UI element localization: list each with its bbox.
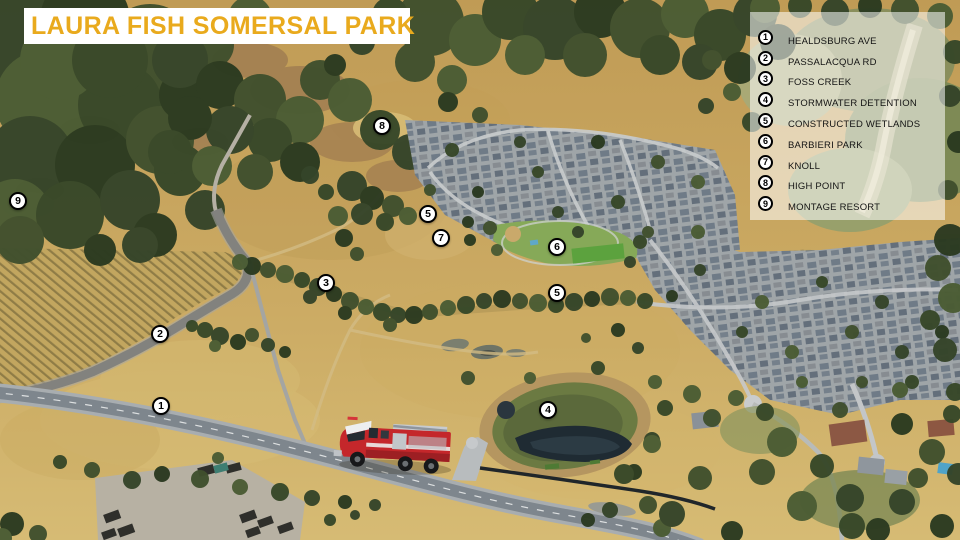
map-marker-5: 5: [419, 205, 437, 223]
legend-label: HIGH POINT: [788, 181, 845, 192]
legend-label: HEALDSBURG AVE: [788, 36, 877, 47]
legend-marker-number: 1: [758, 30, 773, 45]
legend-label: PASSALACQUA RD: [788, 57, 877, 68]
legend-row: 3 FOSS CREEK: [758, 69, 945, 90]
legend-marker-number: 9: [758, 196, 773, 211]
slide: LAURA FISH SOMERSAL PARK 1 HEALDSBURG AV…: [0, 0, 960, 540]
legend-row: 9 MONTAGE RESORT: [758, 193, 945, 214]
legend-marker-number: 5: [758, 113, 773, 128]
legend-marker-number: 8: [758, 175, 773, 190]
map-marker-9: 9: [9, 192, 27, 210]
map-marker-4: 4: [539, 401, 557, 419]
legend-label: BARBIERI PARK: [788, 140, 863, 151]
legend-label: KNOLL: [788, 161, 820, 172]
legend-marker-number: 6: [758, 134, 773, 149]
map-marker-8: 8: [373, 117, 391, 135]
legend-panel: 1 HEALDSBURG AVE 2 PASSALACQUA RD 3 FOSS…: [750, 12, 945, 220]
legend-row: 5 CONSTRUCTED WETLANDS: [758, 110, 945, 131]
legend-marker-number: 7: [758, 155, 773, 170]
map-marker-6: 6: [548, 238, 566, 256]
legend-row: 1 HEALDSBURG AVE: [758, 27, 945, 48]
legend-row: 2 PASSALACQUA RD: [758, 48, 945, 69]
map-marker-7: 7: [432, 229, 450, 247]
map-marker-2: 2: [151, 325, 169, 343]
title-banner: LAURA FISH SOMERSAL PARK: [24, 8, 410, 44]
legend-label: FOSS CREEK: [788, 77, 851, 88]
legend-marker-number: 3: [758, 71, 773, 86]
legend-row: 7 KNOLL: [758, 152, 945, 173]
legend-row: 4 STORMWATER DETENTION: [758, 89, 945, 110]
legend-label: STORMWATER DETENTION: [788, 98, 917, 109]
legend-row: 6 BARBIERI PARK: [758, 131, 945, 152]
map-marker-3: 3: [317, 274, 335, 292]
legend-label: MONTAGE RESORT: [788, 202, 880, 213]
legend-marker-number: 4: [758, 92, 773, 107]
legend-label: CONSTRUCTED WETLANDS: [788, 119, 920, 130]
legend-marker-number: 2: [758, 51, 773, 66]
map-marker-1: 1: [152, 397, 170, 415]
legend-row: 8 HIGH POINT: [758, 173, 945, 194]
map-marker-5: 5: [548, 284, 566, 302]
page-title: LAURA FISH SOMERSAL PARK: [31, 12, 415, 41]
